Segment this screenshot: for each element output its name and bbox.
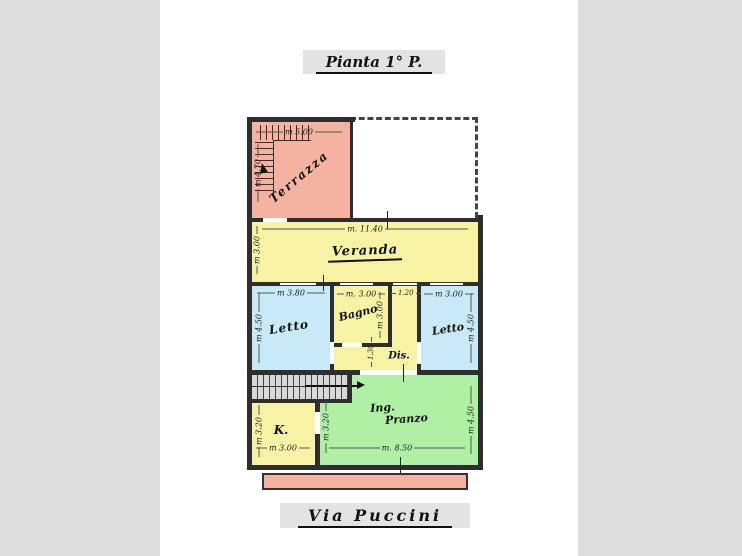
scanned-floorplan-page: Pianta 1° P.: [0, 0, 742, 556]
wall-stairs-right: [348, 375, 352, 403]
plan-title: Pianta 1° P.: [316, 53, 433, 74]
plan-title-box: Pianta 1° P.: [303, 50, 445, 74]
dim-letto-sx-left: m 4.50: [255, 293, 264, 363]
door-letto-dx: [417, 342, 421, 364]
door-letto-sx: [330, 342, 334, 364]
wall-left: [247, 117, 252, 470]
void-area: [350, 117, 478, 218]
wall-top: [247, 117, 355, 122]
wall-terrazza-void: [350, 117, 353, 218]
label-ingresso-pranzo: Ing. Pranzo: [370, 398, 428, 428]
dim-dis-left: 1.30: [367, 343, 375, 367]
door-terrazza: [263, 218, 287, 222]
dim-veranda-top: m. 11.40: [262, 225, 468, 234]
door-cucina: [315, 412, 320, 434]
street-label-box: Via Puccini: [280, 503, 470, 528]
dim-cucina-bottom: m 3.00: [256, 444, 310, 453]
dim-pranzo-right: m 4.50: [467, 386, 476, 454]
wall-bottom: [247, 465, 483, 470]
dim-letto-dx-right: m 4.50: [467, 293, 476, 363]
main-staircase: [252, 375, 348, 399]
floor-plan: m 5.00 m 4.70 m. 11.40 m 3.00 m 3.80 m 4…: [247, 117, 483, 470]
balcony: [262, 473, 468, 490]
wall-right: [478, 215, 483, 470]
label-cucina: K.: [274, 423, 289, 437]
window-bagno: [340, 282, 373, 286]
dim-terrazza-top: m 5.00: [256, 128, 342, 137]
passage-dis-pranzo: [360, 370, 417, 375]
label-dis: Dis.: [388, 351, 410, 362]
dim-pranzo-bottom: m. 8.50: [329, 444, 465, 453]
dim-terrazza-left: m 4.70: [254, 144, 263, 202]
wall-stairs-cucina: [252, 399, 352, 403]
window-letto-sx: [280, 282, 316, 286]
door-bagno: [342, 343, 362, 347]
dim-tick: [403, 364, 404, 382]
street-label: Via Puccini: [298, 506, 452, 528]
dim-letto-sx-top: m 3.80: [257, 289, 325, 298]
stair-direction-arrow: [357, 381, 365, 389]
label-veranda: Veranda: [328, 242, 403, 260]
dim-corridoio-top: 1.20: [391, 289, 417, 297]
dim-veranda-left: m 3.00: [253, 226, 262, 274]
window-corridoio: [393, 282, 417, 286]
window-letto-dx: [430, 282, 463, 286]
